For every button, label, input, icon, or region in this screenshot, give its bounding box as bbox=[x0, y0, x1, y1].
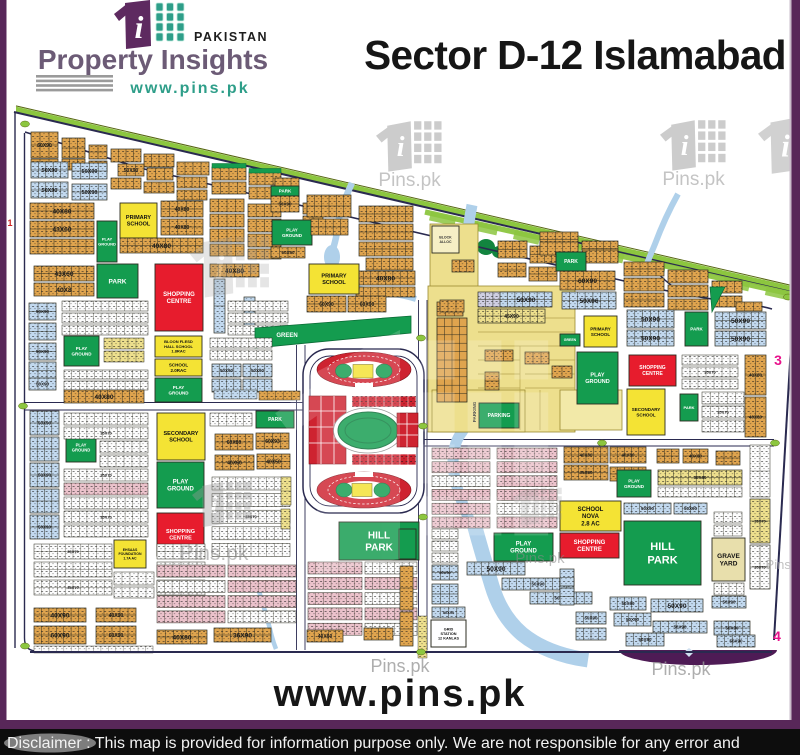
svg-text:PLAY: PLAY bbox=[516, 542, 531, 548]
svg-text:GROUND: GROUND bbox=[169, 390, 190, 395]
svg-text:60X93: 60X93 bbox=[265, 439, 280, 445]
svg-text:35X70: 35X70 bbox=[100, 515, 112, 520]
svg-text:Pins.pk: Pins.pk bbox=[515, 550, 565, 567]
svg-text:40X90: 40X90 bbox=[50, 613, 69, 620]
svg-text:3: 3 bbox=[774, 352, 782, 368]
svg-text:ALLOC: ALLOC bbox=[439, 240, 452, 244]
svg-text:PARK: PARK bbox=[564, 259, 578, 265]
svg-text:50X90: 50X90 bbox=[725, 626, 739, 631]
svg-text:40X80: 40X80 bbox=[172, 635, 191, 642]
svg-text:GREEN: GREEN bbox=[564, 338, 577, 342]
svg-text:60X90: 60X90 bbox=[360, 302, 375, 308]
svg-text:50X90: 50X90 bbox=[278, 202, 292, 207]
svg-text:PARK: PARK bbox=[109, 278, 127, 285]
svg-text:i: i bbox=[681, 131, 689, 162]
svg-text:50X90: 50X90 bbox=[731, 336, 750, 343]
svg-text:60X90: 60X90 bbox=[50, 633, 69, 640]
svg-text:PARK: PARK bbox=[279, 189, 292, 194]
svg-text:40X80: 40X80 bbox=[52, 209, 71, 216]
svg-text:Pins.pk: Pins.pk bbox=[378, 170, 441, 191]
svg-text:60X80: 60X80 bbox=[227, 440, 242, 446]
svg-text:i: i bbox=[211, 492, 218, 519]
svg-text:50X90: 50X90 bbox=[621, 601, 635, 606]
svg-text:50X90: 50X90 bbox=[36, 382, 50, 387]
svg-text:GRAVE: GRAVE bbox=[717, 553, 740, 560]
svg-text:PARK: PARK bbox=[683, 405, 694, 410]
svg-text:GROUND: GROUND bbox=[98, 241, 116, 246]
svg-text:45X90: 45X90 bbox=[504, 314, 519, 320]
svg-text:40X60: 40X60 bbox=[227, 460, 242, 466]
svg-text:50X90: 50X90 bbox=[638, 637, 652, 642]
svg-text:40X60: 40X60 bbox=[318, 634, 333, 640]
svg-text:Sector D-12 Islamabad: Sector D-12 Islamabad bbox=[364, 32, 786, 78]
svg-text:www.pins.pk: www.pins.pk bbox=[129, 80, 249, 97]
svg-text:50X90: 50X90 bbox=[443, 610, 455, 615]
svg-text:SCHOOL: SCHOOL bbox=[169, 362, 189, 367]
svg-text:50X90: 50X90 bbox=[626, 617, 640, 622]
svg-text:PLAY: PLAY bbox=[76, 346, 88, 351]
svg-text:GROUND: GROUND bbox=[72, 351, 93, 356]
svg-text:30X60: 30X60 bbox=[693, 475, 707, 480]
svg-text:40X80: 40X80 bbox=[152, 243, 171, 250]
svg-text:35X80: 35X80 bbox=[579, 470, 593, 475]
svg-text:35X70: 35X70 bbox=[754, 519, 766, 524]
svg-text:SCHOOL: SCHOOL bbox=[591, 332, 611, 337]
svg-text:CENTRE: CENTRE bbox=[169, 536, 192, 542]
svg-text:CENTRE: CENTRE bbox=[167, 299, 192, 305]
svg-text:50X90: 50X90 bbox=[729, 639, 743, 644]
svg-text:43X60: 43X60 bbox=[52, 227, 71, 234]
svg-text:CENTRE: CENTRE bbox=[642, 371, 663, 377]
svg-text:43X60: 43X60 bbox=[54, 271, 73, 278]
svg-text:GRID: GRID bbox=[444, 627, 454, 631]
svg-text:50X90: 50X90 bbox=[82, 169, 98, 175]
svg-text:GROUND: GROUND bbox=[585, 379, 609, 385]
svg-text:50X90: 50X90 bbox=[36, 309, 50, 314]
svg-text:PLAY: PLAY bbox=[173, 385, 185, 390]
svg-text:50X90: 50X90 bbox=[42, 188, 58, 194]
svg-text:40X90: 40X90 bbox=[109, 613, 124, 619]
svg-text:50X90: 50X90 bbox=[36, 349, 50, 354]
svg-text:50X90: 50X90 bbox=[684, 506, 698, 511]
svg-text:40X80: 40X80 bbox=[579, 453, 593, 458]
svg-text:www.pins.pk: www.pins.pk bbox=[273, 673, 527, 715]
svg-text:40X80: 40X80 bbox=[94, 394, 113, 401]
svg-text:50X90: 50X90 bbox=[641, 317, 660, 324]
svg-text:60X90: 60X90 bbox=[281, 250, 295, 255]
svg-text:Pins.pk: Pins.pk bbox=[180, 542, 249, 565]
svg-text:50X90: 50X90 bbox=[38, 421, 52, 426]
svg-text:60X90: 60X90 bbox=[37, 143, 52, 149]
svg-text:4: 4 bbox=[773, 628, 781, 644]
svg-text:Property Insights: Property Insights bbox=[38, 44, 268, 75]
svg-text:Disclaimer : This map is provi: Disclaimer : This map is provided for in… bbox=[7, 735, 740, 752]
svg-text:50X90: 50X90 bbox=[38, 473, 52, 478]
svg-text:i: i bbox=[135, 9, 144, 45]
svg-text:1: 1 bbox=[7, 218, 12, 228]
svg-text:PLAY: PLAY bbox=[628, 478, 640, 483]
svg-text:GREEN: GREEN bbox=[276, 333, 297, 339]
svg-text:PAKISTAN: PAKISTAN bbox=[194, 30, 268, 44]
svg-text:SCHOOL: SCHOOL bbox=[127, 222, 151, 228]
svg-text:40X80: 40X80 bbox=[175, 225, 190, 231]
svg-text:SHOPPING: SHOPPING bbox=[163, 292, 195, 298]
svg-text:35X70: 35X70 bbox=[717, 410, 729, 415]
svg-text:i: i bbox=[215, 250, 225, 287]
svg-text:60X90: 60X90 bbox=[578, 278, 597, 285]
svg-text:50X90: 50X90 bbox=[439, 570, 451, 575]
svg-text:50X90: 50X90 bbox=[516, 297, 535, 304]
svg-text:PARK: PARK bbox=[647, 555, 677, 567]
svg-text:40X80: 40X80 bbox=[175, 207, 190, 213]
svg-text:i: i bbox=[781, 128, 790, 163]
svg-text:GROUND: GROUND bbox=[167, 487, 194, 493]
svg-text:GROUND: GROUND bbox=[72, 448, 91, 453]
svg-text:50X90: 50X90 bbox=[486, 566, 505, 573]
svg-text:40X80: 40X80 bbox=[749, 415, 763, 420]
svg-text:NOVA: NOVA bbox=[582, 514, 600, 520]
svg-text:40X80: 40X80 bbox=[621, 453, 635, 458]
svg-text:PRIMARY: PRIMARY bbox=[126, 215, 151, 221]
svg-text:50X90: 50X90 bbox=[584, 616, 598, 621]
svg-text:GROUND: GROUND bbox=[624, 484, 645, 489]
svg-text:50X90: 50X90 bbox=[251, 368, 265, 373]
svg-text:PLAY: PLAY bbox=[590, 373, 604, 379]
svg-text:i: i bbox=[397, 132, 405, 163]
svg-text:SCHOOL: SCHOOL bbox=[169, 438, 193, 444]
svg-text:SCHOOL: SCHOOL bbox=[636, 412, 656, 417]
svg-text:Pins.pk: Pins.pk bbox=[651, 659, 711, 679]
svg-text:40X80: 40X80 bbox=[376, 276, 395, 283]
svg-text:35X70: 35X70 bbox=[704, 370, 716, 375]
svg-text:36X90: 36X90 bbox=[233, 633, 252, 640]
svg-text:SHOPPING: SHOPPING bbox=[574, 540, 606, 546]
svg-text:50X90: 50X90 bbox=[673, 625, 687, 630]
svg-text:35X70: 35X70 bbox=[67, 549, 79, 554]
svg-text:PRIMARY: PRIMARY bbox=[590, 326, 611, 331]
svg-text:50X90: 50X90 bbox=[124, 168, 139, 174]
svg-text:PARK: PARK bbox=[690, 327, 703, 332]
svg-text:SECONDARY: SECONDARY bbox=[164, 431, 199, 437]
svg-text:40X80: 40X80 bbox=[749, 373, 763, 378]
svg-text:50X90: 50X90 bbox=[38, 525, 52, 530]
svg-text:1.7A AC: 1.7A AC bbox=[123, 556, 137, 560]
svg-text:40X8: 40X8 bbox=[56, 287, 72, 294]
svg-text:2.0RAC: 2.0RAC bbox=[170, 368, 187, 373]
svg-text:40X80: 40X80 bbox=[689, 454, 703, 459]
svg-text:50X90: 50X90 bbox=[82, 190, 98, 196]
svg-text:50X90: 50X90 bbox=[641, 506, 655, 511]
svg-text:50X90: 50X90 bbox=[722, 600, 736, 605]
svg-text:50X96: 50X96 bbox=[579, 298, 598, 305]
svg-text:50X90: 50X90 bbox=[220, 368, 234, 373]
svg-text:SCHOOL: SCHOOL bbox=[322, 280, 346, 286]
svg-text:2.8 AC: 2.8 AC bbox=[581, 521, 600, 527]
svg-text:SHOPPING: SHOPPING bbox=[166, 529, 195, 535]
svg-text:35X70: 35X70 bbox=[100, 431, 112, 436]
svg-text:CENTRE: CENTRE bbox=[577, 547, 602, 553]
svg-text:Pins.pk: Pins.pk bbox=[662, 169, 725, 190]
svg-text:60X90: 60X90 bbox=[109, 633, 124, 639]
svg-text:YARD: YARD bbox=[720, 561, 738, 568]
svg-text:50X90: 50X90 bbox=[641, 336, 660, 343]
svg-text:HILL: HILL bbox=[650, 541, 675, 553]
svg-text:50X90: 50X90 bbox=[42, 168, 58, 174]
svg-text:SECONDARY: SECONDARY bbox=[632, 407, 661, 412]
svg-text:35X70: 35X70 bbox=[100, 473, 112, 478]
svg-text:STATION: STATION bbox=[440, 632, 456, 636]
svg-text:60X90: 60X90 bbox=[319, 302, 334, 308]
svg-text:GROUND: GROUND bbox=[282, 233, 303, 238]
svg-text:1.8RAC: 1.8RAC bbox=[171, 349, 185, 354]
svg-text:PLAY: PLAY bbox=[173, 480, 188, 486]
svg-text:PRIMARY: PRIMARY bbox=[321, 274, 346, 280]
svg-text:12 KANLAS: 12 KANLAS bbox=[438, 636, 460, 640]
svg-text:50X90: 50X90 bbox=[531, 582, 545, 587]
svg-text:PLAY: PLAY bbox=[286, 227, 298, 232]
svg-text:50X90: 50X90 bbox=[731, 318, 750, 325]
svg-text:40X50: 40X50 bbox=[266, 459, 281, 465]
svg-text:35X70: 35X70 bbox=[67, 585, 79, 590]
svg-text:50X90: 50X90 bbox=[667, 603, 686, 610]
svg-text:SCHOOL: SCHOOL bbox=[578, 507, 604, 513]
